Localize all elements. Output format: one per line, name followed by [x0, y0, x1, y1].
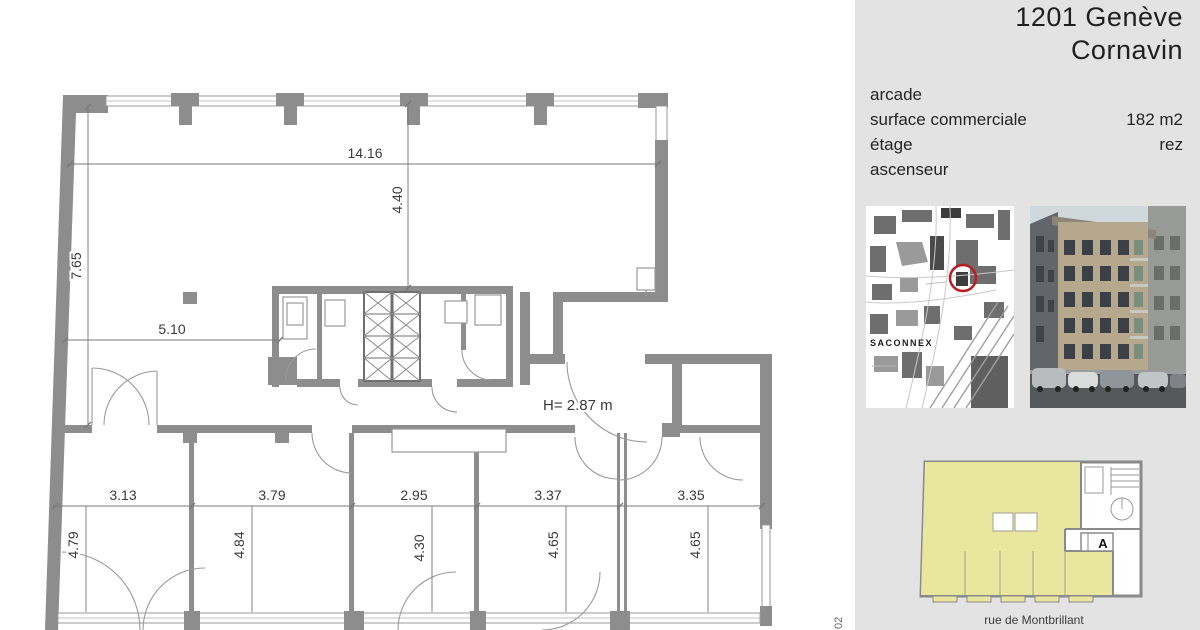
dim-top-width: 14.16 — [347, 145, 382, 161]
listing-title-line1: 1201 Genève — [1015, 1, 1183, 34]
property-factsheet: 14.16 4.40 7.65 5.10 3.13 3.79 2.95 3.37… — [0, 0, 1200, 630]
floor-plan: 14.16 4.40 7.65 5.10 3.13 3.79 2.95 3.37… — [0, 0, 855, 630]
listing-title-line2: Cornavin — [1015, 34, 1183, 67]
listing-title: 1201 Genève Cornavin — [1015, 1, 1183, 67]
info-panel: 1201 Genève Cornavin arcade surface comm… — [855, 0, 1200, 630]
mini-unit-marker: A — [1098, 536, 1108, 551]
detail-label: étage — [870, 132, 913, 157]
dim-room3-d: 4.30 — [411, 534, 427, 561]
dim-room5-d: 4.65 — [687, 531, 703, 558]
dim-top-depth: 4.40 — [389, 186, 405, 213]
situation-plan: A — [915, 455, 1153, 609]
map-district-label: SACONNEX — [870, 338, 933, 348]
dim-room2-d: 4.84 — [231, 531, 247, 558]
elevator-shaft — [364, 292, 420, 381]
ceiling-height-note: H= 2.87 m — [543, 397, 613, 414]
dim-room4-w: 3.37 — [534, 487, 561, 503]
dim-room2-w: 3.79 — [258, 487, 285, 503]
detail-row-type: arcade — [870, 82, 1183, 107]
dim-left-height: 7.65 — [68, 252, 84, 279]
detail-value: 182 m2 — [1126, 107, 1183, 132]
location-map: SACONNEX — [866, 206, 1014, 408]
plan-ref-code: 02 — [833, 617, 845, 629]
detail-label: arcade — [870, 82, 922, 107]
dimension-labels: 14.16 4.40 7.65 5.10 3.13 3.79 2.95 3.37… — [65, 145, 845, 629]
dim-room3-w: 2.95 — [400, 487, 427, 503]
dim-room5-w: 3.35 — [677, 487, 704, 503]
detail-value: rez — [1159, 132, 1183, 157]
detail-row-surface: surface commerciale 182 m2 — [870, 107, 1183, 132]
building-photo — [1030, 206, 1186, 408]
building-photo-thumbnail — [1030, 206, 1186, 408]
dim-room1-d: 4.79 — [65, 531, 81, 558]
detail-row-elevator: ascenseur — [870, 157, 1183, 182]
mini-entry-room — [1081, 533, 1113, 551]
detail-label: surface commerciale — [870, 107, 1027, 132]
location-map-thumbnail: SACONNEX — [866, 206, 1014, 408]
property-details: arcade surface commerciale 182 m2 étage … — [870, 82, 1183, 182]
dim-left-width: 5.10 — [158, 321, 185, 337]
mini-window-tabs — [933, 596, 1093, 602]
dim-room4-d: 4.65 — [545, 531, 561, 558]
detail-label: ascenseur — [870, 157, 948, 182]
situation-plan-svg: A — [915, 455, 1153, 609]
detail-row-floor: étage rez — [870, 132, 1183, 157]
dim-room1-w: 3.13 — [109, 487, 136, 503]
street-name-label: rue de Montbrillant — [913, 613, 1155, 627]
